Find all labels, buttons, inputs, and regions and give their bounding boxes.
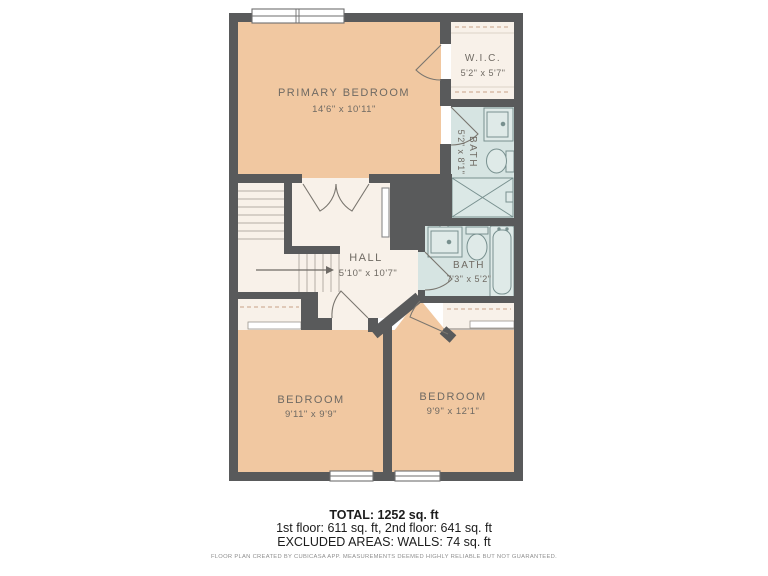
floor-plan-page: PRIMARY BEDROOM 14'6" x 10'11" W.I.C. 5'…: [0, 0, 768, 576]
toilet-tank-icon: [466, 227, 488, 234]
toilet-tank-icon: [506, 151, 514, 172]
room-dims-label: 14'6" x 10'11": [312, 104, 376, 115]
room-label: BEDROOM: [419, 391, 486, 403]
room-dims-label: 7'3" x 5'2": [447, 274, 492, 284]
excluded-areas-text: EXCLUDED AREAS: WALLS: 74 sq. ft: [0, 536, 768, 550]
vanity-sink-icon: [484, 108, 513, 141]
door-leaf: [382, 188, 389, 237]
room-label: BATH: [467, 136, 478, 168]
closet-shelf-right: [470, 321, 514, 328]
floor-areas-text: 1st floor: 611 sq. ft, 2nd floor: 641 sq…: [0, 522, 768, 536]
room-label: BEDROOM: [277, 394, 344, 406]
disclaimer-text: FLOOR PLAN CREATED BY CUBICASA APP. MEAS…: [0, 554, 768, 560]
total-area-text: TOTAL: 1252 sq. ft: [0, 508, 768, 522]
room-wic: [451, 22, 514, 107]
toilet-icon: [487, 149, 507, 173]
stair-railing-wall: [284, 178, 292, 252]
toilet-icon: [467, 234, 487, 260]
floor-plan: PRIMARY BEDROOM 14'6" x 10'11" W.I.C. 5'…: [0, 0, 768, 576]
room-dims-label: 9'11" x 9'9": [285, 409, 337, 420]
room-dims-label: 9'9" x 12'1": [427, 406, 480, 417]
room-label: HALL: [349, 252, 383, 264]
room-primary-bedroom: [237, 22, 441, 182]
area-summary: TOTAL: 1252 sq. ft 1st floor: 611 sq. ft…: [0, 508, 768, 560]
bathtub-icon: [490, 226, 514, 298]
room-dims-label: 5'2" x 8'1": [456, 130, 466, 175]
room-label: BATH: [453, 260, 485, 271]
room-label: W.I.C.: [465, 53, 501, 64]
wall-outer-left: [229, 13, 238, 481]
room-dims-label: 5'2" x 5'7": [461, 68, 506, 78]
stair-railing-wall: [284, 246, 340, 254]
room-label: PRIMARY BEDROOM: [278, 87, 410, 99]
wall-between-bedrooms: [383, 322, 392, 473]
wall-diagonal-stub: [443, 330, 453, 339]
closet-shelf-left: [248, 322, 301, 329]
room-dims-label: 5'10" x 10'7": [339, 268, 398, 279]
wall-outer-right: [514, 13, 523, 481]
wall-outer-bottom: [229, 472, 523, 481]
